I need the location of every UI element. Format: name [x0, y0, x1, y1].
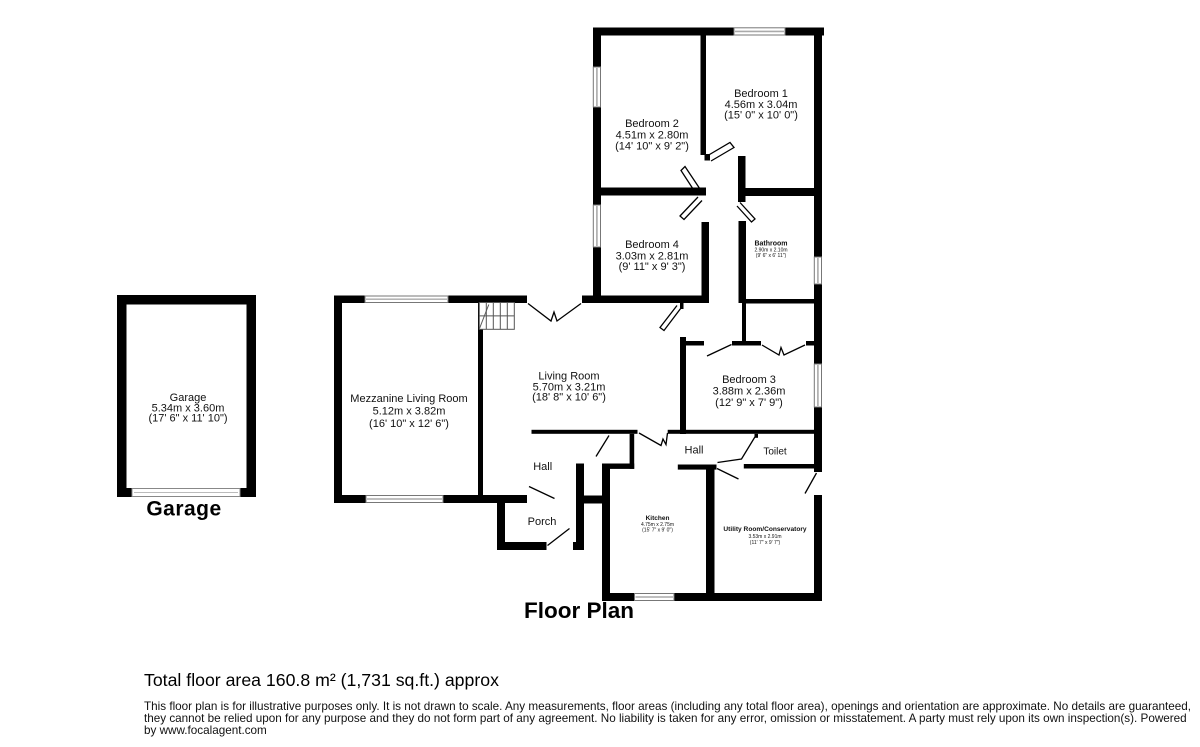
svg-text:(9' 6" x 6' 11"): (9' 6" x 6' 11") [756, 253, 787, 259]
svg-text:3.88m x 2.36m: 3.88m x 2.36m [713, 386, 786, 398]
svg-text:(18' 8" x 10' 6"): (18' 8" x 10' 6") [532, 392, 606, 404]
svg-text:Porch: Porch [528, 516, 557, 528]
svg-text:Bedroom 3: Bedroom 3 [722, 374, 776, 386]
svg-text:(14' 10" x 9' 2"): (14' 10" x 9' 2") [615, 141, 689, 153]
svg-text:by www.focalagent.com: by www.focalagent.com [144, 724, 267, 737]
svg-text:(16' 10" x 12' 6"): (16' 10" x 12' 6") [369, 418, 449, 430]
svg-text:(9' 11" x 9' 3"): (9' 11" x 9' 3") [619, 261, 686, 273]
svg-text:Utility Room/Conservatory: Utility Room/Conservatory [723, 526, 807, 533]
svg-text:Bedroom 2: Bedroom 2 [625, 118, 679, 130]
svg-text:they cannot be relied upon for: they cannot be relied upon for any purpo… [144, 712, 1187, 725]
svg-text:Toilet: Toilet [763, 447, 787, 458]
svg-text:Hall: Hall [533, 461, 552, 473]
svg-text:Floor Plan: Floor Plan [524, 598, 634, 623]
svg-text:Bedroom 4: Bedroom 4 [625, 239, 679, 251]
svg-text:(17' 6" x 11' 10"): (17' 6" x 11' 10") [148, 413, 227, 425]
svg-text:(11' 7" x 9' 7"): (11' 7" x 9' 7") [750, 540, 781, 546]
svg-text:Total floor area 160.8 m² (1,7: Total floor area 160.8 m² (1,731 sq.ft.)… [144, 670, 499, 690]
svg-text:(12' 9" x 7' 9"): (12' 9" x 7' 9") [715, 397, 783, 409]
svg-text:(15' 0" x 10' 0"): (15' 0" x 10' 0") [724, 110, 798, 122]
svg-text:Bathroom: Bathroom [754, 240, 787, 247]
svg-text:Hall: Hall [685, 445, 704, 457]
svg-text:Mezzanine Living Room: Mezzanine Living Room [350, 393, 467, 405]
svg-text:5.12m x 3.82m: 5.12m x 3.82m [373, 406, 446, 418]
svg-text:(15' 7" x 9' 0"): (15' 7" x 9' 0") [642, 527, 673, 533]
svg-text:Garage: Garage [146, 498, 221, 521]
